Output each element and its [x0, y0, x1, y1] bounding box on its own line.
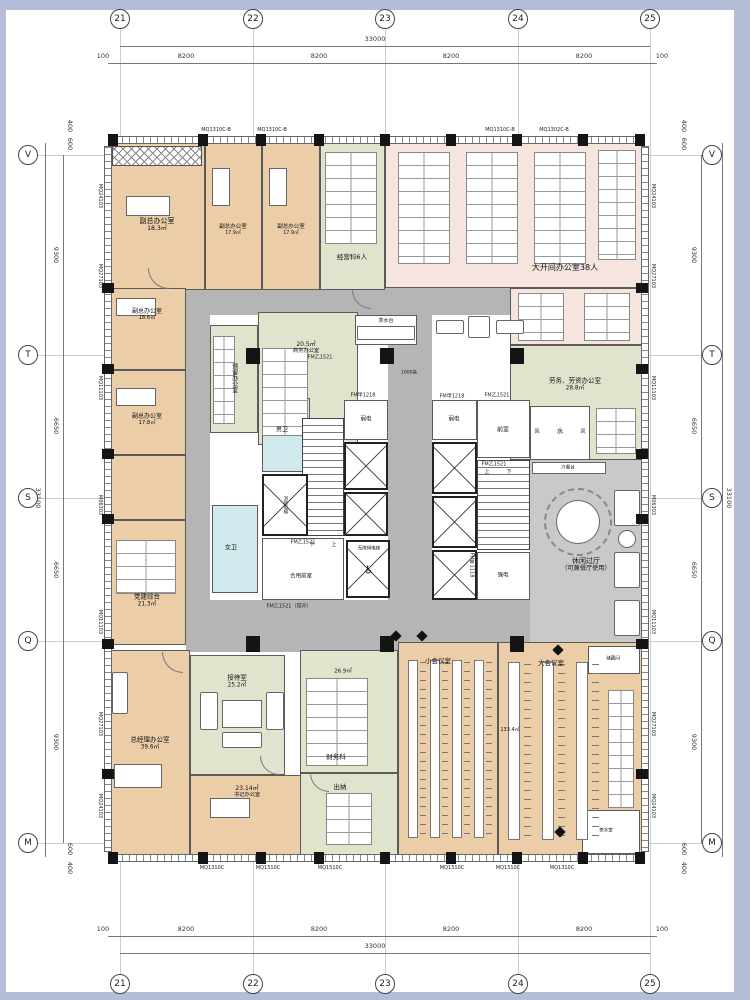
- dim-left-400b: 400: [66, 862, 74, 874]
- label-reception: 接待室25.2㎡: [227, 675, 247, 690]
- wall-tag-right-7: MQ24103: [650, 794, 656, 818]
- dim-left-seg3: 6650: [52, 562, 60, 579]
- window-strip-bottom: [114, 854, 639, 862]
- dim-top-seg2: 8200: [311, 52, 328, 60]
- door-tag-fm-b1521-open: FM乙1521（常开）: [267, 603, 312, 610]
- dim-bot-total: 33000: [365, 942, 386, 950]
- dim-right-600t: 600: [680, 138, 688, 150]
- workstations: [534, 152, 586, 264]
- window-strip-top: [114, 136, 639, 144]
- column: [510, 636, 524, 652]
- label-open-office: 大开间办公室38人: [532, 263, 598, 273]
- wall-tag-left-7: MQ24103: [97, 794, 103, 818]
- label-finance-area: 26.9㎡: [334, 669, 352, 676]
- room-vp-office-2: [205, 142, 262, 290]
- chair-row: [558, 664, 565, 838]
- dim-bot-seg4: 8200: [576, 925, 593, 933]
- column: [102, 514, 114, 524]
- sofa: [436, 320, 464, 334]
- label-womens-toilet: 女卫: [225, 544, 237, 551]
- grid-bubble-Q-right: Q: [702, 631, 722, 651]
- sofa: [614, 600, 640, 636]
- column: [446, 134, 456, 146]
- sofa: [112, 672, 128, 714]
- sofa: [266, 692, 284, 730]
- column: [246, 348, 260, 364]
- column: [102, 283, 114, 293]
- wall-tag-bot-5: MQ1510C: [496, 865, 520, 871]
- wall-tag-bot-2: MQ1510C: [256, 865, 280, 871]
- column: [512, 134, 522, 146]
- side-table: [618, 530, 636, 548]
- stair-up-label: 上: [331, 542, 336, 548]
- corridor-lobby: [388, 315, 432, 605]
- label-operations: 经营科6人: [337, 254, 367, 262]
- meeting-table: [408, 660, 418, 838]
- dim-top-seg1: 8200: [178, 52, 195, 60]
- elevator-right-1: [432, 442, 477, 494]
- grid-bubble-V-right: V: [702, 145, 722, 165]
- dim-bot-seg1: 8200: [178, 925, 195, 933]
- column: [256, 852, 266, 864]
- column: [636, 514, 648, 524]
- room-vp-office-3: [262, 142, 320, 290]
- label-cold-buffet: 冷餐台: [561, 465, 575, 470]
- label-finance: 财务科: [326, 754, 346, 762]
- label-strong-current: 强电: [497, 573, 508, 580]
- meeting-table: [452, 660, 462, 838]
- column: [314, 852, 324, 864]
- dim-top-edge-l: 100: [97, 52, 109, 60]
- label-secretary-office: 23.14㎡书记办公室: [234, 785, 260, 799]
- column: [102, 364, 114, 374]
- grid-bubble-V-left: V: [18, 145, 38, 165]
- dim-bot-edge-l: 100: [97, 925, 109, 933]
- meeting-table: [474, 660, 484, 838]
- desk: [114, 764, 162, 788]
- grid-bubble-Q-left: Q: [18, 631, 38, 651]
- workstations: [398, 152, 450, 264]
- column: [636, 449, 648, 459]
- dim-left-400t: 400: [66, 120, 74, 132]
- elevator-left-2: [344, 492, 388, 536]
- workstations: [596, 408, 636, 454]
- wheelchair-icon: ♿: [364, 563, 374, 576]
- column: [380, 852, 390, 864]
- corridor-top: [186, 288, 510, 315]
- label-vp-office-3: 副总办公室17.9㎡: [277, 224, 305, 236]
- label-vp-office-4: 副总办公室18.6㎡: [132, 308, 162, 322]
- grid-bubble-25-bot: 25: [640, 974, 660, 994]
- grid-bubble-T-left: T: [18, 345, 38, 365]
- label-shaft-left: 风: [534, 429, 539, 435]
- dim-left-seg2: 6650: [52, 418, 60, 435]
- label-party-building: 党建综合21.3㎡: [134, 594, 160, 609]
- column: [510, 348, 524, 364]
- tea-counter: [357, 326, 415, 340]
- dim-right-seg1: 9300: [690, 247, 698, 264]
- label-mens-toilet: 男卫: [276, 426, 288, 433]
- wall-tag-right-2: MQ27103: [650, 264, 656, 288]
- meeting-table: [430, 660, 440, 838]
- label-labor-office: 劳务、劳资办公室28.8㎡: [549, 378, 601, 393]
- dim-left-seg1: 9300: [52, 247, 60, 264]
- column: [102, 449, 114, 459]
- label-small-meeting: 小会议室: [425, 658, 451, 666]
- wall-tag-left-2: MQ27103: [97, 264, 103, 288]
- column: [512, 852, 522, 864]
- wall-tag-right-6: MQ27103: [650, 712, 656, 736]
- wall-tag-bot-3: MQ1510C: [318, 865, 342, 871]
- column: [198, 134, 208, 146]
- label-fire-elevator: 消防电梯: [282, 496, 287, 514]
- desk: [212, 168, 230, 206]
- sofa: [222, 732, 262, 748]
- wall-tag-top-2: MQ1310C-B: [257, 127, 287, 133]
- floorplan-sheet: 33000 8200 8200 8200 8200 100 100 8200 8…: [0, 0, 750, 1000]
- meeting-table: [542, 662, 554, 840]
- wall-tag-top-3: MQ1310C-B: [485, 127, 515, 133]
- dim-line-left-seg: [63, 155, 64, 843]
- window-strip-left: [104, 146, 112, 852]
- chair-block: [608, 690, 634, 808]
- dim-bot-edge-r: 100: [656, 925, 668, 933]
- label-weak-current-right: 弱电: [448, 417, 459, 424]
- wall-tag-top-4: MQ1302C-B: [539, 127, 569, 133]
- sofa: [200, 692, 218, 730]
- label-vp-office-2: 副总办公室17.9㎡: [219, 224, 247, 236]
- label-tea-counter: 茶水台: [378, 318, 393, 324]
- column: [314, 134, 324, 146]
- column: [578, 852, 588, 864]
- stair-up-label-2: 上: [484, 469, 489, 475]
- workstations: [598, 150, 636, 260]
- desk: [269, 168, 287, 206]
- column: [198, 852, 208, 864]
- wall-tag-left-3: MQ11103: [97, 376, 103, 400]
- label-weak-current-left: 弱电: [360, 417, 371, 424]
- column: [636, 769, 648, 779]
- grid-bubble-S-right: S: [702, 488, 722, 508]
- dim-line-right-total: [722, 143, 723, 857]
- column: [246, 636, 260, 652]
- grid-bubble-24-top: 24: [508, 9, 528, 29]
- workstations: [584, 293, 630, 341]
- workstations: [325, 152, 377, 244]
- wall-tag-right-4: M06303: [650, 495, 656, 515]
- wall-tag-bot-4: MQ1510C: [440, 865, 464, 871]
- dim-top-edge-r: 100: [656, 52, 668, 60]
- door-tag-fm-a1218: FM甲1218: [440, 393, 465, 400]
- dim-line-top-total: [120, 46, 650, 47]
- label-vp-office-5: 副总办公室17.8㎡: [132, 413, 162, 427]
- dim-right-seg2: 6650: [690, 418, 698, 435]
- grid-bubble-T-right: T: [702, 345, 722, 365]
- label-shared-anteroom: 合用前室: [290, 574, 312, 581]
- workstations: [518, 293, 564, 341]
- label-accessible-elevator: 无障碍电梯: [358, 546, 381, 551]
- dim-line-bottom-seg: [108, 936, 657, 937]
- workstations: [326, 793, 372, 845]
- dim-right-400b: 400: [680, 862, 688, 874]
- dim-right-seg3: 6650: [690, 562, 698, 579]
- desk: [116, 388, 156, 406]
- dim-top-seg3: 8200: [443, 52, 460, 60]
- grid-bubble-23-top: 23: [375, 9, 395, 29]
- meeting-table: [508, 662, 520, 840]
- door-tag-fm-a1118: FM甲1118: [469, 553, 476, 578]
- grid-bubble-21-bot: 21: [110, 974, 130, 994]
- label-shaft-right: 风: [580, 429, 585, 435]
- wall-tag-top-1: MQ1310C-B: [201, 127, 231, 133]
- wall-tag-bot-6: MQ1310C: [550, 865, 574, 871]
- door-tag-fm-b1521: FM乙1521: [485, 392, 510, 399]
- column: [446, 852, 456, 864]
- label-tea-room: 茶水室: [599, 828, 613, 833]
- desk: [210, 798, 250, 818]
- label-counter-height: 1000高: [401, 370, 417, 375]
- dim-left-600b: 600: [66, 843, 74, 855]
- coffee-table: [222, 700, 262, 728]
- label-water-room: 水: [557, 428, 564, 436]
- wall-tag-right-5: MQ11103: [650, 610, 656, 634]
- label-reserved-office: 预留办公室: [230, 363, 237, 393]
- column: [108, 134, 118, 146]
- grid-bubble-22-top: 22: [243, 9, 263, 29]
- elevator-right-2: [432, 496, 477, 548]
- meeting-table: [576, 662, 588, 840]
- label-storage: 储藏间: [606, 656, 620, 661]
- label-large-meeting: 大会议室: [538, 660, 564, 668]
- dim-line-top-seg: [108, 63, 657, 64]
- dim-bot-seg2: 8200: [311, 925, 328, 933]
- desk: [126, 196, 170, 216]
- door-tag-fm-b1521: FM乙1521: [482, 461, 507, 468]
- chair-row: [420, 662, 426, 836]
- dim-left-600t: 600: [66, 138, 74, 150]
- closet-cabinet: [112, 146, 202, 166]
- grid-bubble-23-bot: 23: [375, 974, 395, 994]
- dim-right-600b: 600: [680, 843, 688, 855]
- label-anteroom: 前室: [497, 426, 509, 433]
- sofa: [614, 552, 640, 588]
- label-vp-office-1: 副总办公室18.3㎡: [140, 217, 175, 233]
- column: [636, 283, 648, 293]
- column: [380, 134, 390, 146]
- wall-tag-bot-1: MQ1310C: [200, 865, 224, 871]
- workstations: [466, 152, 518, 264]
- grid-bubble-22-bot: 22: [243, 974, 263, 994]
- dim-right-total: 33100: [725, 488, 733, 509]
- round-table: [556, 500, 600, 544]
- chair-row: [592, 664, 599, 838]
- stair-west: [302, 418, 344, 536]
- room-lounge-nook: [110, 455, 186, 520]
- grid-bubble-S-left: S: [18, 488, 38, 508]
- grid-bubble-M-left: M: [18, 833, 38, 853]
- window-strip-right: [641, 146, 649, 852]
- dim-left-seg4: 9300: [52, 734, 60, 751]
- column: [102, 639, 114, 649]
- wall-tag-left-4: M06303: [97, 495, 103, 515]
- chair-row: [486, 662, 492, 836]
- frame-right: [734, 0, 750, 1000]
- frame-bottom: [0, 992, 750, 1000]
- column: [256, 134, 266, 146]
- column: [635, 134, 645, 146]
- frame-top: [0, 0, 750, 10]
- column: [636, 639, 648, 649]
- wall-tag-left-6: MQ27103: [97, 712, 103, 736]
- stair-down-label-2: 下: [506, 469, 511, 475]
- dim-right-seg4: 9300: [690, 734, 698, 751]
- label-cashier: 出纳: [334, 784, 347, 792]
- wall-tag-right-3: MQ11103: [650, 376, 656, 400]
- sofa: [468, 316, 490, 338]
- dim-bot-seg3: 8200: [443, 925, 460, 933]
- wall-tag-left-1: MQ24103: [97, 184, 103, 208]
- chair-row: [442, 662, 448, 836]
- grid-bubble-M-right: M: [702, 833, 722, 853]
- grid-bubble-21-top: 21: [110, 9, 130, 29]
- dim-line-bottom-total: [120, 953, 650, 954]
- wall-tag-left-5: MQ11103: [97, 610, 103, 634]
- label-large-meeting-area: 133.4㎡: [500, 727, 519, 733]
- column: [380, 348, 394, 364]
- door-tag-fm-b1521: FM乙1521: [291, 539, 316, 546]
- dim-top-seg4: 8200: [576, 52, 593, 60]
- workstations: [116, 540, 176, 594]
- door-tag-fm-a1218: FM甲1218: [351, 392, 376, 399]
- label-gm-office: 总经理办公室39.6㎡: [131, 737, 170, 752]
- dim-right-400t: 400: [680, 120, 688, 132]
- chair-row: [524, 664, 531, 838]
- dim-top-total: 33000: [365, 35, 386, 43]
- column: [578, 134, 588, 146]
- column: [102, 769, 114, 779]
- label-leisure-hall: 休闲过厅（可兼餐厅使用）: [561, 557, 610, 573]
- wall-tag-right-1: MQ24103: [650, 184, 656, 208]
- chair-row: [464, 662, 470, 836]
- door-tag-fm-b1521: FM乙1521: [308, 354, 333, 361]
- column: [108, 852, 118, 864]
- grid-bubble-24-bot: 24: [508, 974, 528, 994]
- column: [636, 364, 648, 374]
- dim-line-left-total: [45, 143, 46, 857]
- column: [635, 852, 645, 864]
- grid-bubble-25-top: 25: [640, 9, 660, 29]
- elevator-left-1: [344, 442, 388, 490]
- sofa: [496, 320, 524, 334]
